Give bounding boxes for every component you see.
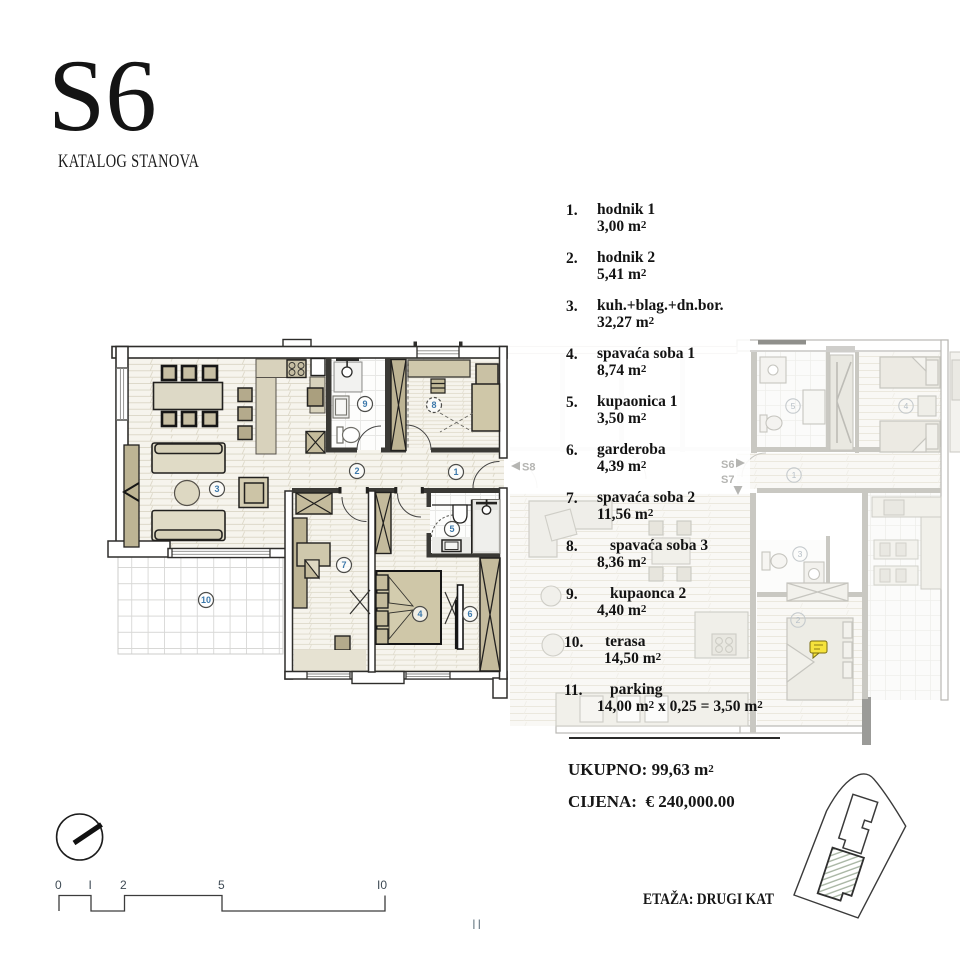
svg-text:9: 9 [362, 399, 367, 409]
svg-text:S7: S7 [721, 474, 734, 486]
svg-text:5: 5 [218, 878, 225, 892]
svg-text:2: 2 [796, 615, 801, 625]
svg-text:1: 1 [453, 467, 458, 477]
svg-text:5: 5 [791, 401, 796, 411]
svg-text:4: 4 [904, 401, 909, 411]
svg-text:6: 6 [467, 609, 472, 619]
svg-text:7: 7 [341, 560, 346, 570]
svg-text:3: 3 [214, 484, 219, 494]
svg-text:I: I [89, 878, 92, 892]
svg-text:3: 3 [798, 549, 803, 559]
svg-text:10: 10 [201, 595, 211, 605]
svg-text:2: 2 [120, 878, 127, 892]
svg-text:S6: S6 [721, 459, 734, 471]
svg-text:1: 1 [792, 470, 797, 480]
svg-text:8: 8 [431, 400, 436, 410]
svg-text:4: 4 [417, 609, 422, 619]
svg-text:I0: I0 [377, 878, 387, 892]
svg-text:2: 2 [354, 466, 359, 476]
svg-text:S8: S8 [522, 462, 535, 474]
svg-text:0: 0 [55, 878, 62, 892]
svg-text:5: 5 [449, 524, 454, 534]
